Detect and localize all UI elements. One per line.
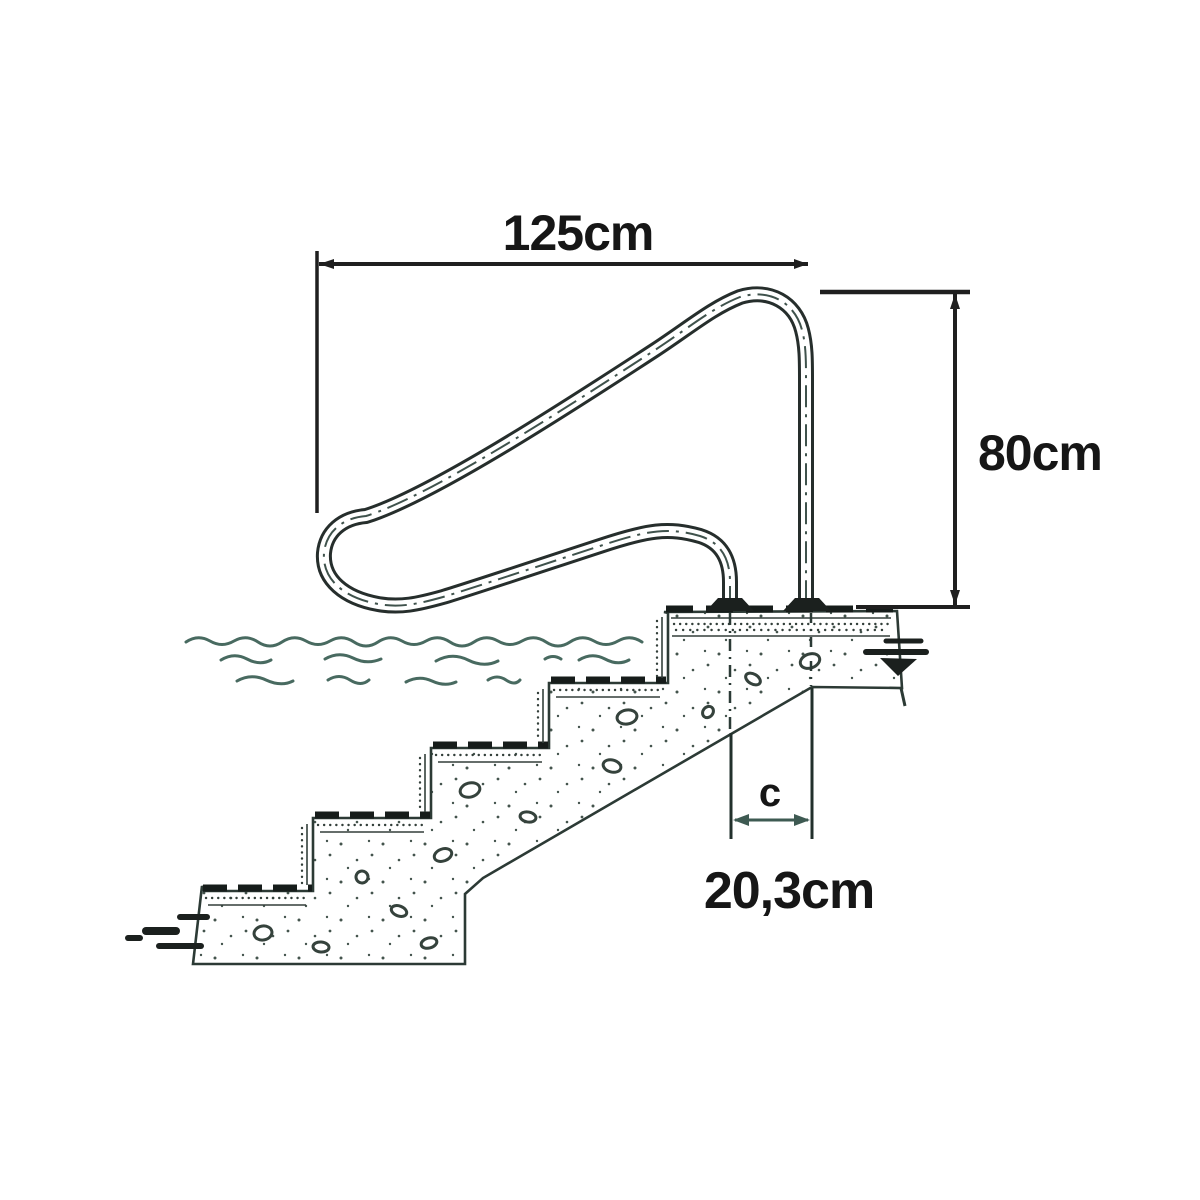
handrail-flange-right — [783, 598, 831, 611]
arrowhead-right — [794, 814, 810, 826]
tick-bottom — [950, 590, 960, 605]
label-rail-height: 80cm — [978, 425, 1102, 481]
diagram-canvas: 125cm 80cm c 20,3cm — [0, 0, 1200, 1200]
handrail-steps-diagram: 125cm 80cm c 20,3cm — [0, 0, 1200, 1200]
handrail-flange-left — [706, 598, 754, 611]
label-spacing-value: 20,3cm — [704, 862, 874, 920]
tick-right — [794, 259, 808, 269]
label-spacing-symbol: c — [759, 771, 781, 815]
tick-top — [950, 294, 960, 309]
dimension-rail-span: 125cm — [317, 205, 808, 513]
slab-edge-stub — [901, 688, 905, 706]
dimension-rail-height: 80cm — [820, 292, 1102, 607]
tick-left — [319, 259, 334, 269]
label-rail-span: 125cm — [503, 205, 654, 261]
arrowhead-left — [733, 814, 749, 826]
